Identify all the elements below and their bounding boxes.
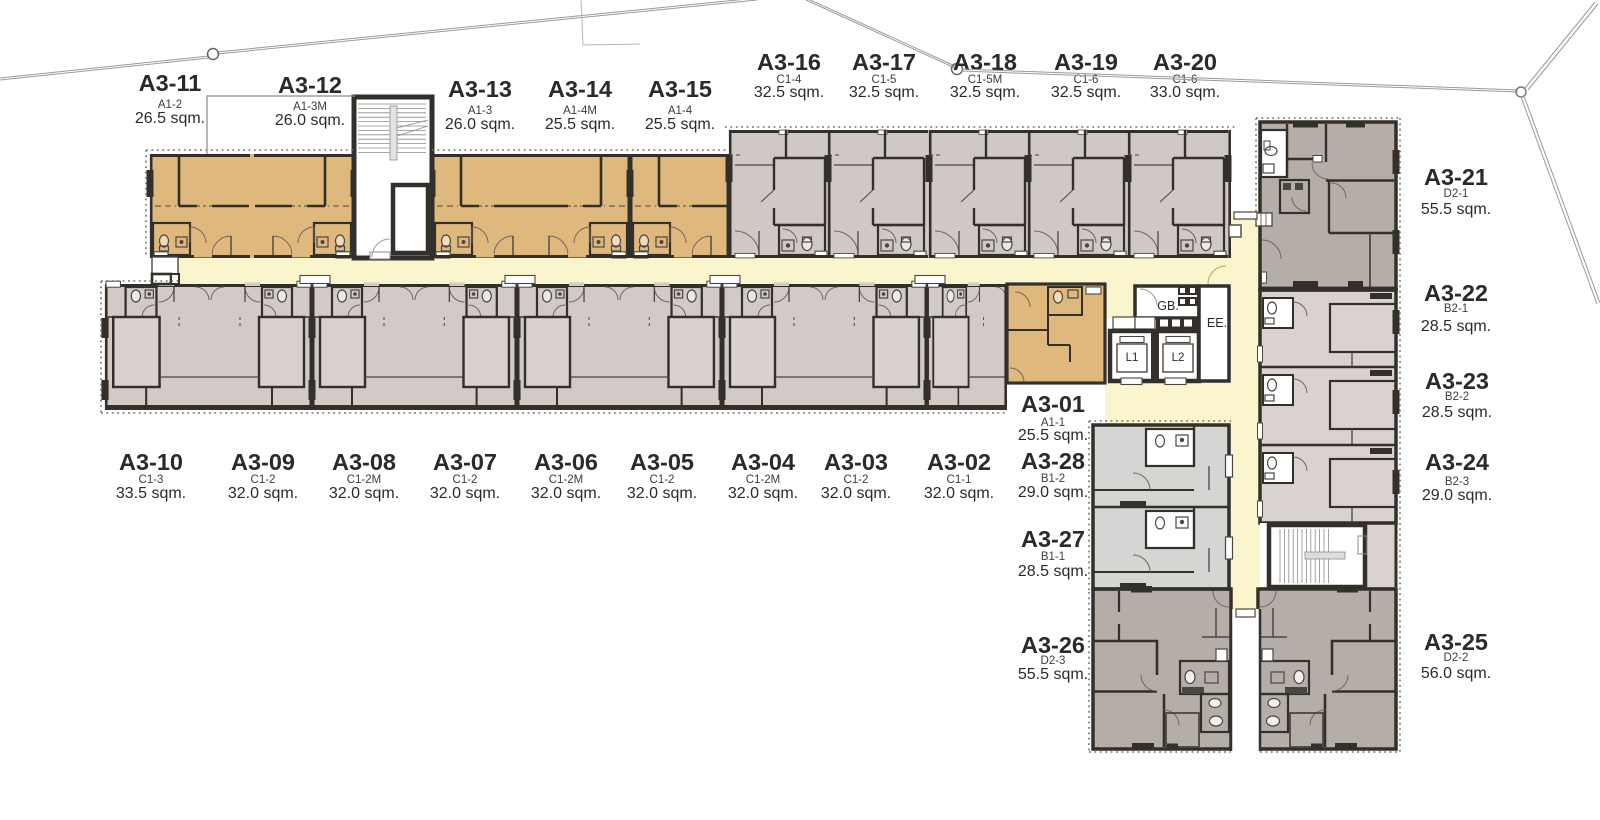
svg-text:A3-27: A3-27 [1021, 526, 1085, 552]
svg-text:A3-05: A3-05 [630, 449, 694, 475]
svg-text:29.0 sqm.: 29.0 sqm. [1018, 484, 1088, 501]
svg-text:25.5 sqm.: 25.5 sqm. [645, 116, 715, 133]
svg-text:33.5 sqm.: 33.5 sqm. [116, 485, 186, 502]
svg-text:D2-2: D2-2 [1444, 652, 1469, 664]
svg-text:A3-01: A3-01 [1021, 391, 1085, 417]
svg-text:32.0 sqm.: 32.0 sqm. [329, 485, 399, 502]
svg-text:28.5 sqm.: 28.5 sqm. [1422, 404, 1492, 421]
svg-text:B2-1: B2-1 [1444, 303, 1468, 315]
svg-text:28.5 sqm.: 28.5 sqm. [1018, 563, 1088, 580]
svg-text:A3-12: A3-12 [278, 72, 342, 98]
svg-text:A3-06: A3-06 [534, 449, 598, 475]
svg-text:A3-14: A3-14 [548, 76, 612, 102]
svg-text:26.0 sqm.: 26.0 sqm. [445, 116, 515, 133]
svg-text:32.0 sqm.: 32.0 sqm. [228, 485, 298, 502]
svg-text:A3-20: A3-20 [1153, 49, 1217, 75]
svg-text:A3-10: A3-10 [119, 449, 183, 475]
svg-text:A3-15: A3-15 [648, 76, 712, 102]
svg-text:A3-02: A3-02 [927, 449, 991, 475]
svg-text:32.5 sqm.: 32.5 sqm. [849, 84, 919, 101]
svg-text:32.0 sqm.: 32.0 sqm. [728, 485, 798, 502]
svg-text:32.0 sqm.: 32.0 sqm. [430, 485, 500, 502]
svg-text:D2-1: D2-1 [1444, 188, 1469, 200]
svg-text:GB.: GB. [1157, 299, 1179, 313]
svg-text:A3-28: A3-28 [1021, 448, 1085, 474]
svg-text:32.0 sqm.: 32.0 sqm. [821, 485, 891, 502]
svg-text:EE.: EE. [1207, 316, 1227, 330]
svg-text:L1: L1 [1126, 352, 1139, 364]
svg-text:56.0 sqm.: 56.0 sqm. [1421, 665, 1491, 682]
svg-text:A3-16: A3-16 [757, 49, 821, 75]
svg-text:A3-17: A3-17 [852, 49, 916, 75]
svg-text:28.5 sqm.: 28.5 sqm. [1421, 318, 1491, 335]
svg-text:25.5 sqm.: 25.5 sqm. [1018, 427, 1088, 444]
svg-text:29.0 sqm.: 29.0 sqm. [1422, 487, 1492, 504]
svg-text:32.5 sqm.: 32.5 sqm. [950, 84, 1020, 101]
svg-text:26.5 sqm.: 26.5 sqm. [135, 110, 205, 127]
svg-text:B2-2: B2-2 [1445, 391, 1469, 403]
svg-text:A3-11: A3-11 [139, 70, 202, 96]
svg-text:25.5 sqm.: 25.5 sqm. [545, 116, 615, 133]
svg-text:55.5 sqm.: 55.5 sqm. [1421, 201, 1491, 218]
svg-text:B1-1: B1-1 [1041, 551, 1065, 563]
svg-text:A3-03: A3-03 [824, 449, 888, 475]
svg-text:A3-04: A3-04 [731, 449, 795, 475]
svg-text:26.0 sqm.: 26.0 sqm. [275, 112, 345, 129]
svg-text:33.0 sqm.: 33.0 sqm. [1150, 84, 1220, 101]
svg-text:32.0 sqm.: 32.0 sqm. [531, 485, 601, 502]
svg-text:A3-24: A3-24 [1425, 449, 1489, 475]
svg-text:32.5 sqm.: 32.5 sqm. [754, 84, 824, 101]
svg-text:A3-07: A3-07 [433, 449, 497, 475]
svg-text:L2: L2 [1172, 352, 1185, 364]
svg-text:32.0 sqm.: 32.0 sqm. [627, 485, 697, 502]
svg-text:A3-19: A3-19 [1054, 49, 1118, 75]
svg-text:55.5 sqm.: 55.5 sqm. [1018, 666, 1088, 683]
svg-text:32.5 sqm.: 32.5 sqm. [1051, 84, 1121, 101]
svg-text:A3-21: A3-21 [1424, 164, 1488, 190]
svg-text:A3-13: A3-13 [448, 76, 512, 102]
svg-text:32.0 sqm.: 32.0 sqm. [924, 485, 994, 502]
svg-text:A3-09: A3-09 [231, 449, 295, 475]
svg-text:A3-08: A3-08 [332, 449, 396, 475]
